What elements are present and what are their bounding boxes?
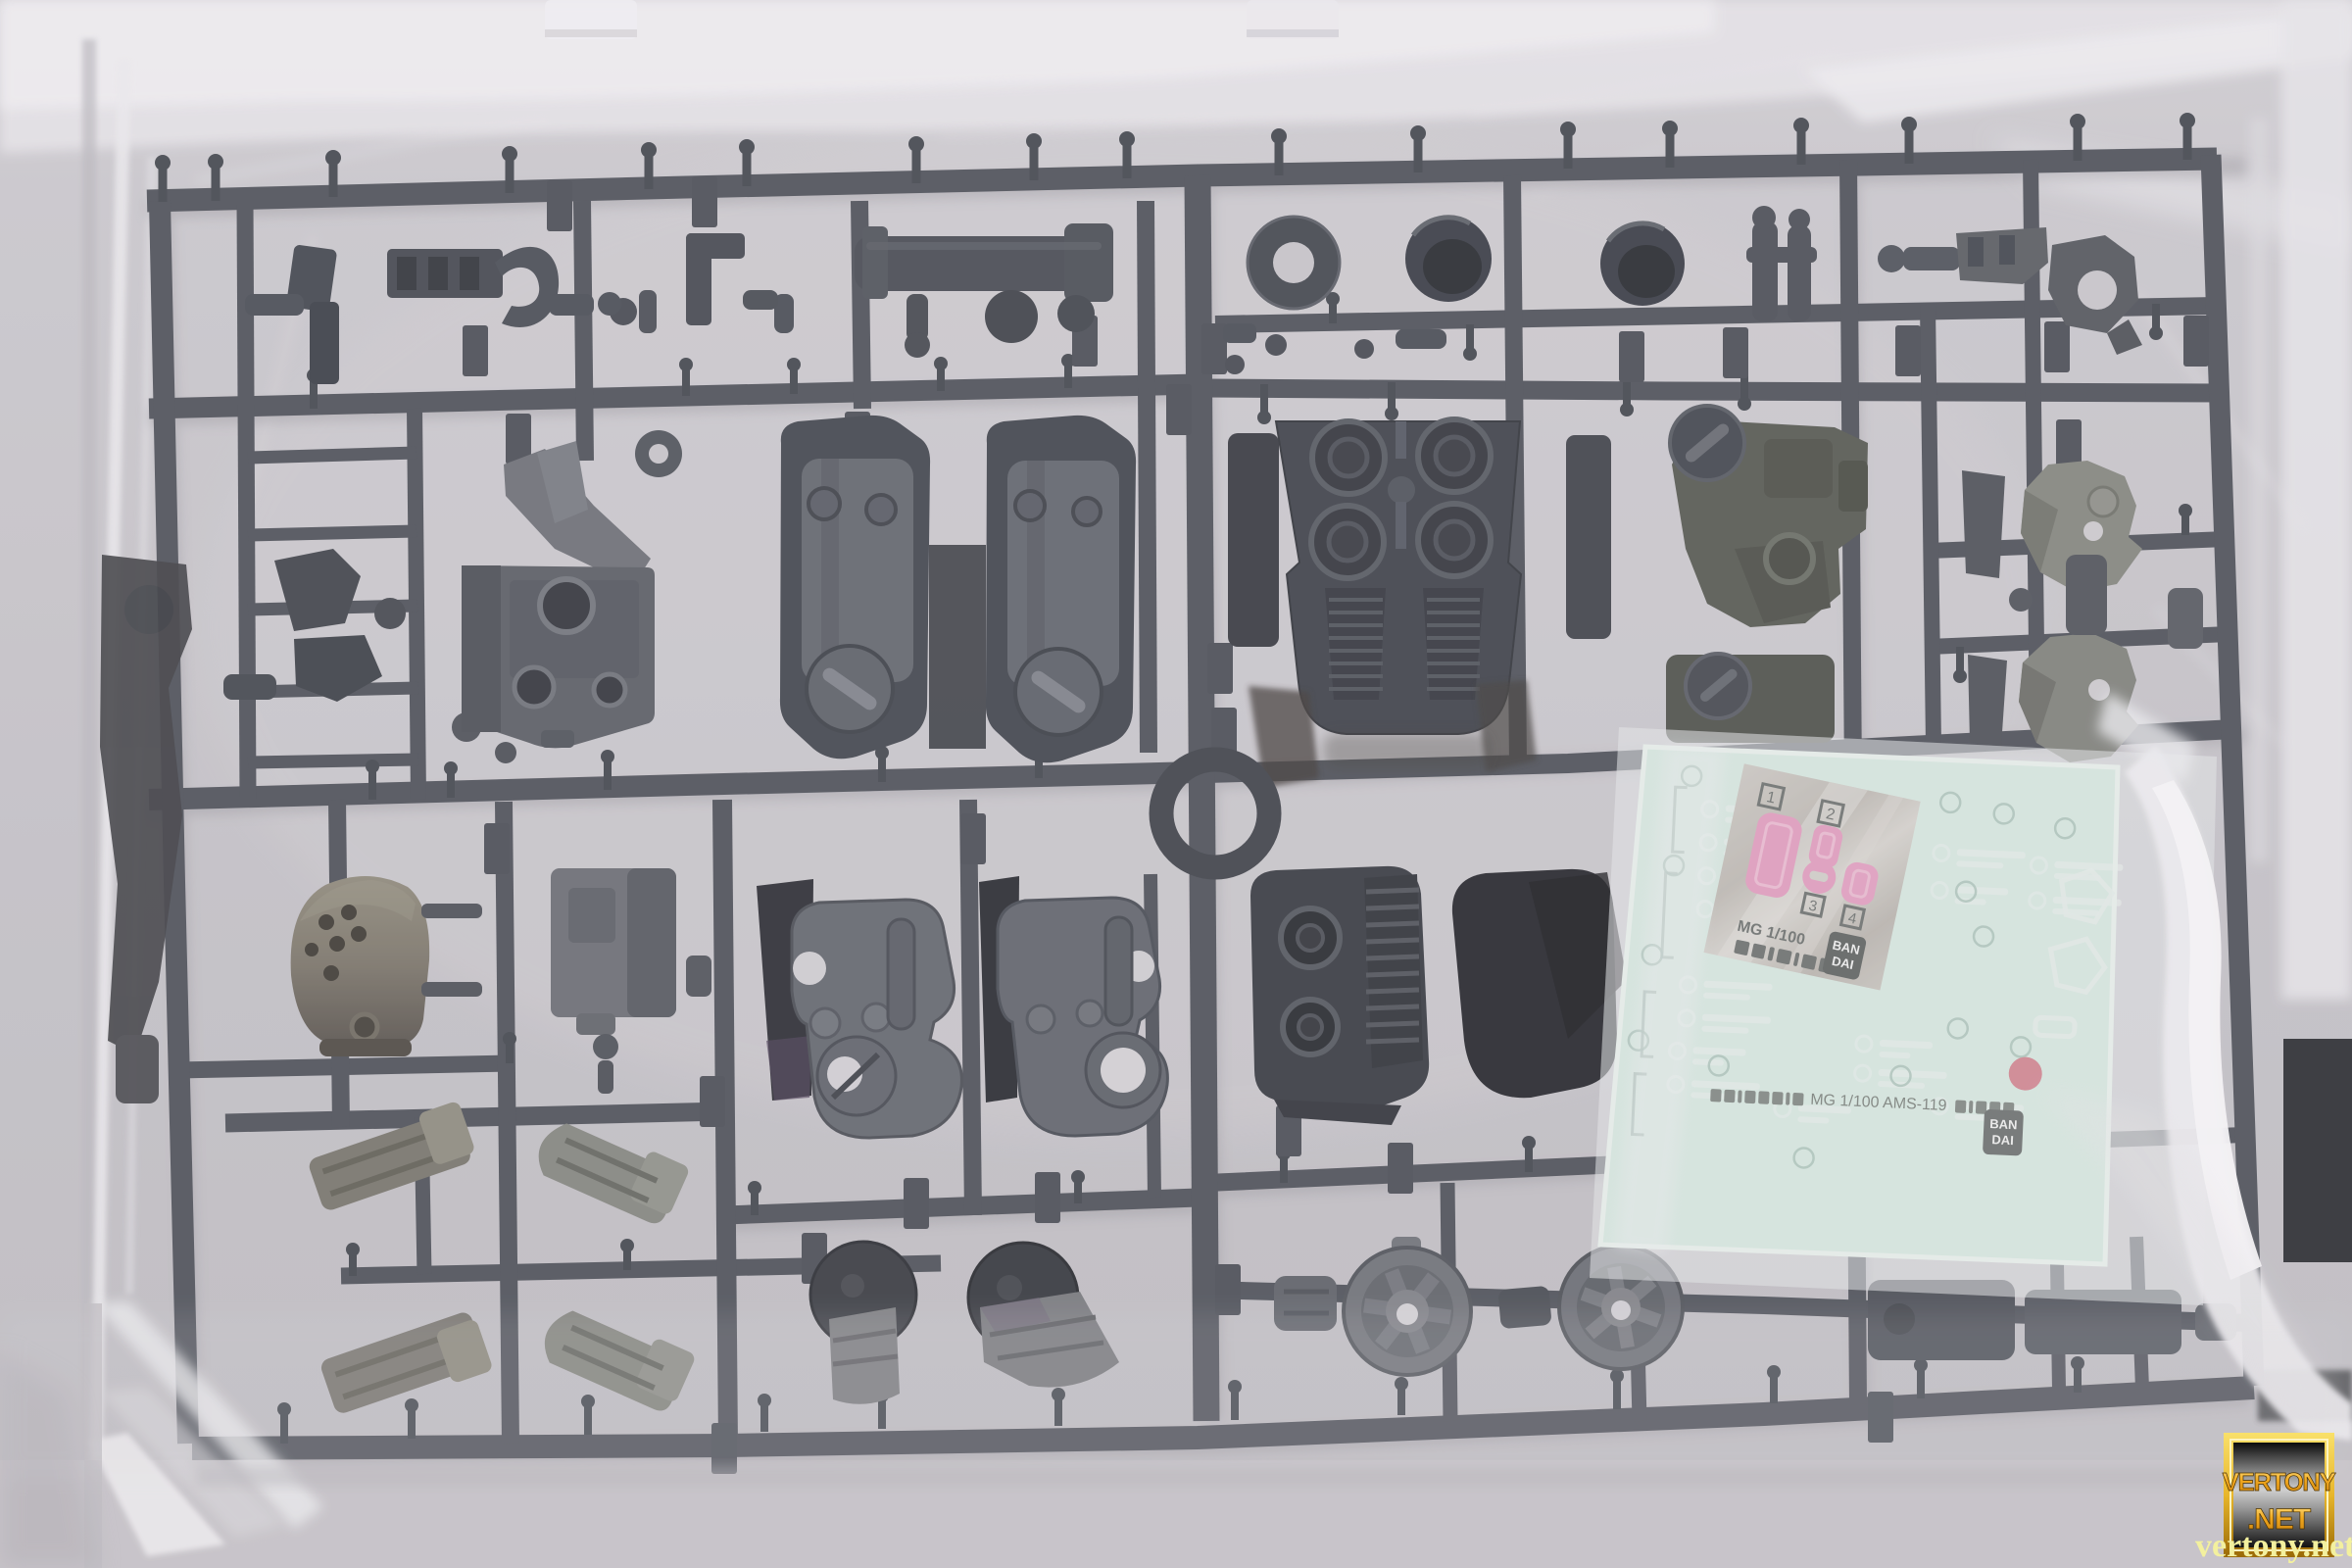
svg-text:VERTONY: VERTONY bbox=[2223, 1467, 2336, 1496]
svg-text:vertony.net: vertony.net bbox=[2195, 1528, 2352, 1564]
